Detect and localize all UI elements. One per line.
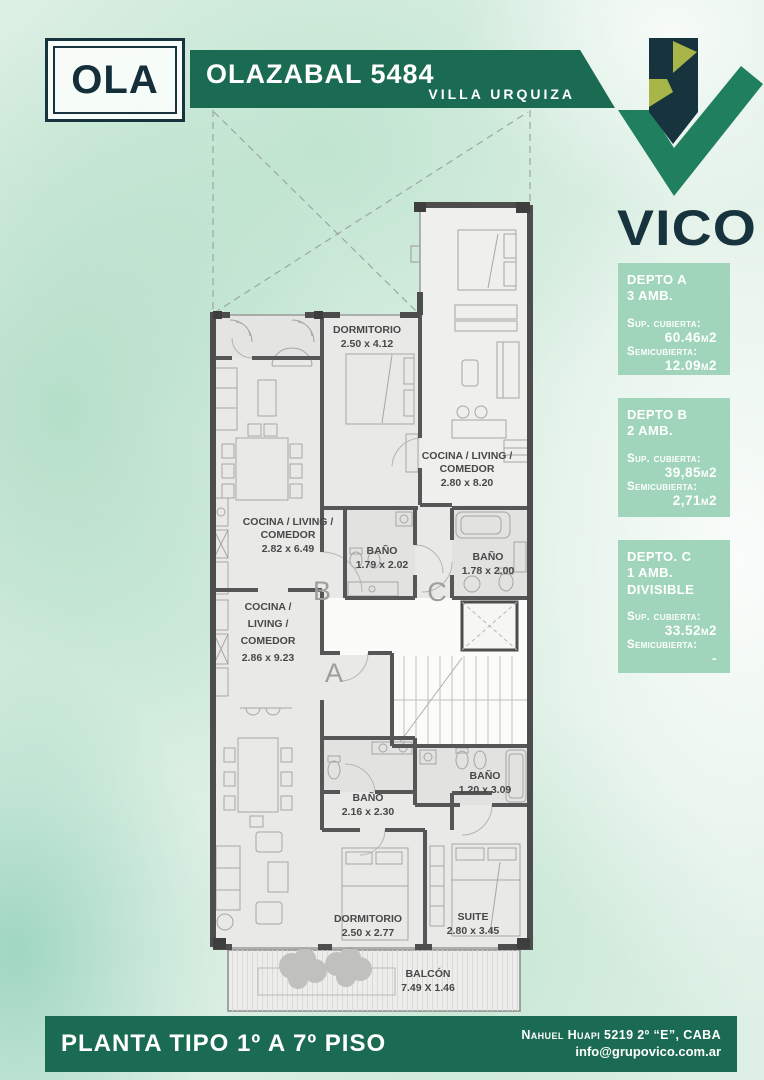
dim-bano-suite: 1.20 x 3.09 xyxy=(459,784,512,796)
unit-a-rooms: 3 AMB. xyxy=(627,288,721,304)
unit-c-divisible: DIVISIBLE xyxy=(627,582,721,598)
unit-c-rooms: 1 AMB. xyxy=(627,565,721,581)
footer-contact: Nahuel Huapi 5219 2º “E”, CABA info@grup… xyxy=(521,1027,721,1060)
unit-b-semi-label: Semicubierta: xyxy=(627,481,721,493)
unit-b-semi-value: 2,71m2 xyxy=(627,493,721,508)
unit-c-name: DEPTO. C xyxy=(627,549,721,565)
unit-c-covered-label: Sup. cubierta: xyxy=(627,611,721,623)
ola-logo-frame xyxy=(53,46,177,114)
unit-b-name: DEPTO B xyxy=(627,407,721,423)
unit-card-depto-b: DEPTO B 2 AMB. Sup. cubierta: 39,85m2 Se… xyxy=(618,398,730,517)
unit-card-depto-c: DEPTO. C 1 AMB. DIVISIBLE Sup. cubierta:… xyxy=(618,540,730,673)
flyer-page: A B C DORMITORIO 2.50 x 4.12 COCINA / LI… xyxy=(0,0,764,1080)
dim-dormitorio-b: 2.50 x 4.12 xyxy=(341,338,394,350)
dim-bano-c: 1.78 x 2.00 xyxy=(462,565,515,577)
dim-bano-a: 2.16 x 2.30 xyxy=(342,806,395,818)
dim-cocina-b: 2.82 x 6.49 xyxy=(262,543,315,555)
dim-bano-b: 1.79 x 2.02 xyxy=(356,559,409,571)
unit-b-rooms: 2 AMB. xyxy=(627,423,721,439)
vico-logo: VICO xyxy=(598,16,764,266)
dim-cocina-a: 2.86 x 9.23 xyxy=(242,652,295,664)
ola-logo: OLA xyxy=(45,38,185,122)
footer-address: Nahuel Huapi 5219 2º “E”, CABA xyxy=(521,1027,721,1043)
page-subtitle: VILLA URQUIZA xyxy=(428,86,575,102)
title-band: OLAZABAL 5484 VILLA URQUIZA xyxy=(190,50,615,108)
unit-b-covered-label: Sup. cubierta: xyxy=(627,453,721,465)
label-bano-a: BAÑO xyxy=(353,791,384,804)
unit-card-depto-a: DEPTO A 3 AMB. Sup. cubierta: 60.46m2 Se… xyxy=(618,263,730,375)
unit-a-semi-label: Semicubierta: xyxy=(627,346,721,358)
elevator xyxy=(462,602,517,650)
dim-dormitorio-a: 2.50 x 2.77 xyxy=(342,927,395,939)
unit-c-covered-value: 33.52m2 xyxy=(627,623,721,638)
label-cocina-b-1: COCINA / LIVING / xyxy=(243,516,334,528)
unit-letter-b: B xyxy=(313,576,331,606)
dim-balcon: 7.49 X 1.46 xyxy=(401,982,455,994)
unit-letter-a: A xyxy=(325,658,343,688)
label-bano-suite: BAÑO xyxy=(470,769,501,782)
unit-c-semi-value: - xyxy=(627,651,721,666)
label-cocina-b-2: COMEDOR xyxy=(261,529,316,541)
vico-logo-icon: VICO xyxy=(598,16,764,266)
page-title: OLAZABAL 5484 xyxy=(206,59,435,90)
dim-suite: 2.80 x 3.45 xyxy=(447,925,500,937)
label-dormitorio-b: DORMITORIO xyxy=(333,324,401,336)
unit-letter-c: C xyxy=(427,577,447,607)
unit-a-semi-value: 12.09m2 xyxy=(627,358,721,373)
label-cocina-c-1: COCINA / LIVING / xyxy=(422,450,513,462)
label-dormitorio-a: DORMITORIO xyxy=(334,913,402,925)
unit-b-covered-value: 39,85m2 xyxy=(627,465,721,480)
label-suite: SUITE xyxy=(458,911,489,923)
unit-a-covered-label: Sup. cubierta: xyxy=(627,318,721,330)
footer-email: info@grupovico.com.ar xyxy=(521,1044,721,1061)
label-cocina-a-3: COMEDOR xyxy=(241,635,296,647)
footer-bar: PLANTA TIPO 1º A 7º PISO Nahuel Huapi 52… xyxy=(45,1016,737,1072)
label-cocina-a-1: COCINA / xyxy=(245,601,292,613)
label-bano-b: BAÑO xyxy=(367,544,398,557)
label-cocina-a-2: LIVING / xyxy=(248,618,289,630)
vico-wordmark: VICO xyxy=(617,200,757,256)
dim-cocina-c: 2.80 x 8.20 xyxy=(441,477,494,489)
label-balcon: BALCÓN xyxy=(406,967,451,980)
unit-a-name: DEPTO A xyxy=(627,272,721,288)
unit-a-covered-value: 60.46m2 xyxy=(627,330,721,345)
footer-title: PLANTA TIPO 1º A 7º PISO xyxy=(61,1030,386,1058)
unit-c-semi-label: Semicubierta: xyxy=(627,639,721,651)
label-cocina-c-2: COMEDOR xyxy=(440,463,495,475)
label-bano-c: BAÑO xyxy=(473,550,504,563)
